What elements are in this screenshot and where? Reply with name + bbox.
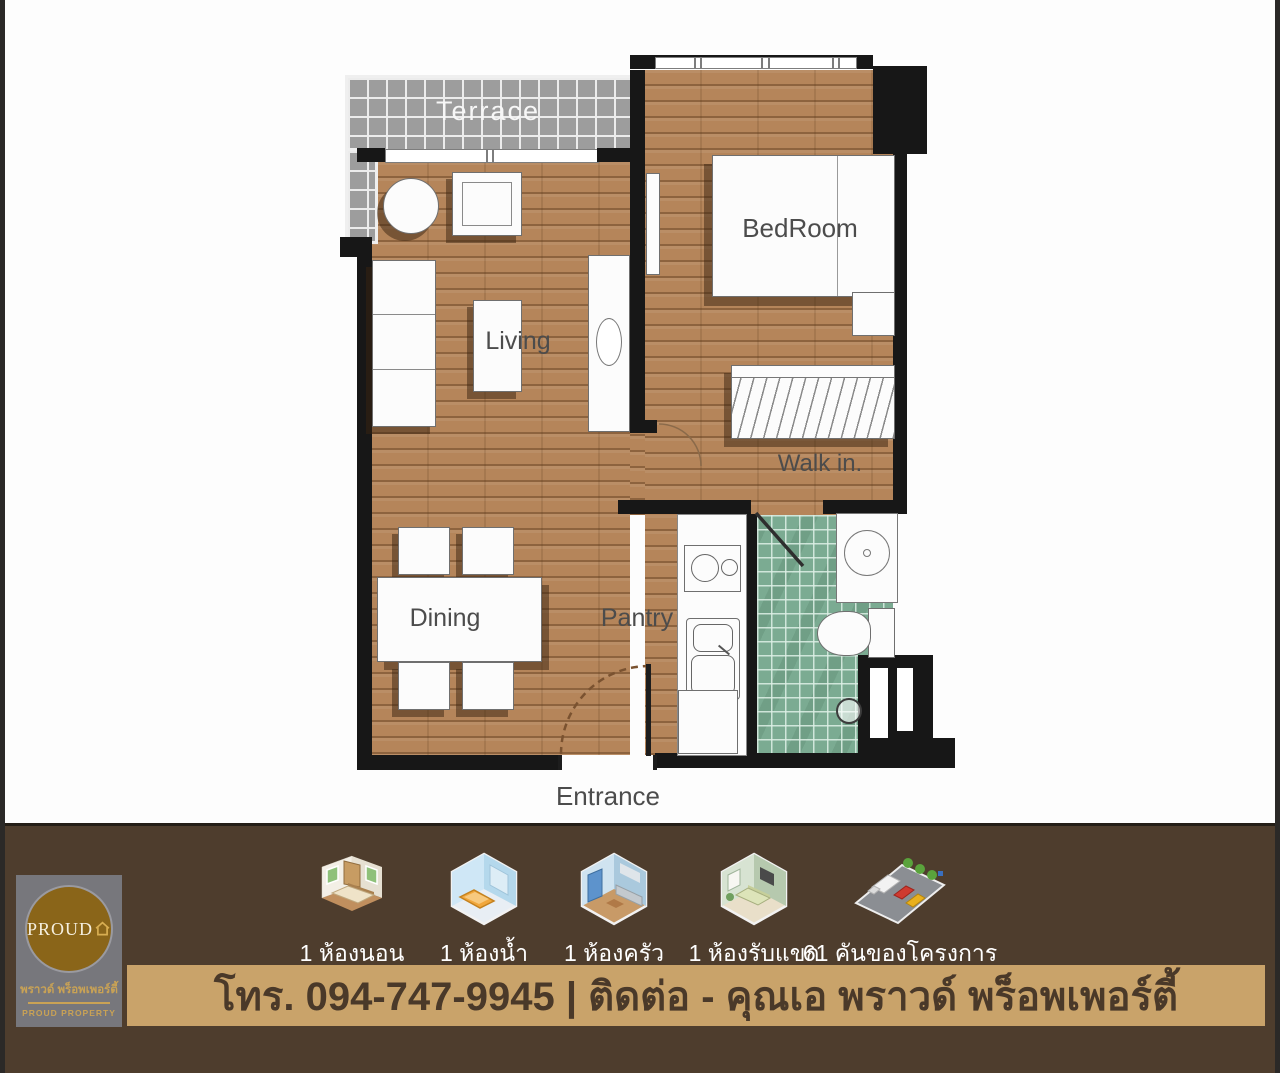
sofa-seam — [373, 369, 435, 370]
floor-plan: Terrace — [0, 0, 1280, 823]
window-mullion — [486, 150, 488, 162]
wardrobe-shelf — [732, 366, 894, 378]
basin-counter — [836, 513, 898, 603]
sink-bowl — [691, 655, 735, 695]
dining-chair — [398, 527, 450, 575]
frame-edge-right — [1275, 0, 1280, 1073]
terrace-side-strip — [345, 148, 378, 244]
toilet-tank — [868, 608, 895, 658]
living-window — [385, 149, 599, 163]
living-label: Living — [453, 327, 583, 356]
window-mullion — [768, 58, 770, 68]
living-bedroom-divider-wall — [630, 70, 645, 420]
shaft-foot — [858, 738, 955, 768]
dining-chair — [398, 662, 450, 710]
stove — [684, 545, 741, 592]
bottom-wall-left — [357, 755, 560, 770]
shaft-slot — [870, 668, 888, 738]
window-mullion — [492, 150, 494, 162]
bedroom-label: BedRoom — [715, 213, 885, 244]
logo-circle: PROUD — [25, 885, 113, 973]
feature-parking: 61 คันของโครงการ — [805, 851, 995, 972]
shaft-slot — [897, 668, 913, 731]
brand-name: PROUD — [27, 919, 93, 940]
bedroom-door-arc — [657, 422, 703, 468]
living-room-icon — [716, 851, 792, 927]
brand-logo: PROUD พราวด์ พร็อพเพอร์ตี้ PROUD PROPERT… — [16, 875, 122, 1027]
tv-console-living — [588, 255, 630, 432]
basin-drain — [863, 549, 871, 557]
walkin-label: Walk in. — [750, 450, 890, 478]
logo-divider — [28, 1002, 110, 1004]
brand-subtitle: PROUD PROPERTY — [22, 1008, 116, 1018]
right-wall — [893, 154, 907, 510]
entrance-threshold — [558, 755, 562, 770]
left-wall — [357, 237, 372, 770]
armchair — [452, 172, 522, 236]
frame-edge-left — [0, 0, 5, 1073]
living-top-wall-left — [357, 148, 385, 162]
bathroom-door — [753, 510, 809, 572]
tv-console-bedroom — [646, 173, 660, 275]
wardrobe — [731, 365, 895, 439]
contact-text: โทร. 094-747-9945 | ติดต่อ - คุณเอ พราวด… — [214, 964, 1178, 1028]
brand-thai-name: พราวด์ พร็อพเพอร์ตี้ — [20, 981, 118, 999]
sink-bowl — [693, 624, 733, 652]
bedroom-icon — [314, 851, 390, 927]
kitchen-icon — [576, 851, 652, 927]
bathroom-icon — [446, 851, 522, 927]
parking-icon — [850, 851, 950, 927]
round-table — [383, 178, 439, 234]
kitchen-top-wall — [618, 500, 751, 514]
armchair-cushion — [462, 182, 512, 226]
tv-screen — [596, 318, 622, 366]
living-top-wall-right — [597, 148, 630, 162]
sofa-seam — [373, 314, 435, 315]
window-mullion — [761, 58, 763, 68]
dining-chair — [462, 662, 514, 710]
house-icon — [94, 918, 111, 940]
washer — [678, 690, 738, 754]
bedroom-window — [655, 57, 857, 69]
shower-drain — [836, 698, 862, 724]
window-mullion — [700, 58, 702, 68]
dining-label: Dining — [380, 604, 510, 633]
left-wall-notch — [340, 237, 357, 257]
structural-column — [873, 66, 927, 154]
entrance-threshold — [653, 755, 657, 770]
nightstand — [852, 292, 895, 336]
toilet-bowl — [817, 611, 871, 656]
sofa — [372, 260, 436, 427]
entrance-label: Entrance — [538, 781, 678, 812]
kitchen-sink — [686, 618, 740, 700]
entrance-door-panel — [646, 664, 651, 756]
dining-chair — [462, 527, 514, 575]
window-mullion — [832, 58, 834, 68]
footer-bar: PROUD พราวด์ พร็อพเพอร์ตี้ PROUD PROPERT… — [0, 823, 1280, 1073]
flyer: Terrace — [0, 0, 1280, 1073]
window-mullion — [694, 58, 696, 68]
contact-strip: โทร. 094-747-9945 | ติดต่อ - คุณเอ พราวด… — [127, 965, 1265, 1026]
burner — [721, 559, 738, 576]
window-mullion — [838, 58, 840, 68]
bedroom-door-stub — [630, 420, 657, 433]
bath-top-wall — [823, 500, 907, 514]
burner — [691, 554, 719, 582]
entrance-door-arc — [557, 662, 653, 758]
terrace-label: Terrace — [388, 96, 588, 127]
